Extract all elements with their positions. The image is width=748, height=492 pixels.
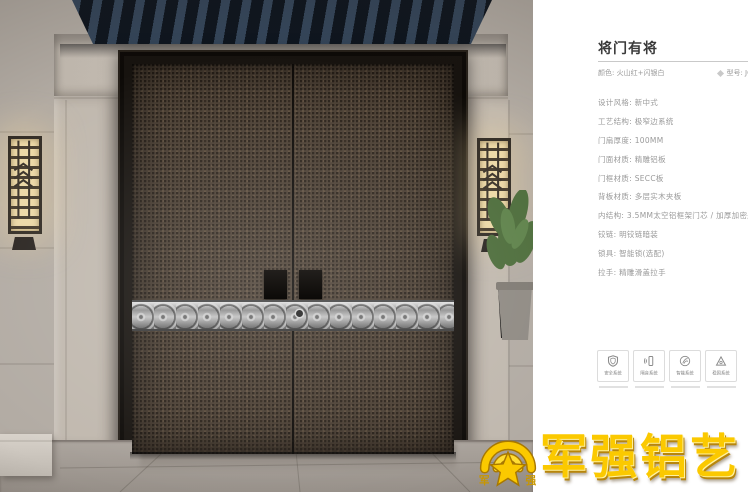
- feature-caption-line: [599, 386, 628, 388]
- model-group: 型号: JC: [718, 68, 748, 78]
- feature-caption-line: [635, 386, 664, 388]
- spec-row: 锁具: 智能锁(选配): [598, 248, 748, 267]
- fingerprint-icon: [679, 355, 691, 367]
- brand-emblem-icon: 军 强: [476, 425, 540, 491]
- spec-row: 铰链: 明铰链暗装: [598, 229, 748, 248]
- spec-panel: 将门有将 颜色: 火山红+闪银白 型号: JC 设计风格: 新中式 工艺结构: …: [533, 0, 748, 492]
- triangle-stability-icon: [715, 355, 727, 367]
- emblem-char-right: 强: [525, 474, 536, 487]
- spec-row: 门扇厚度: 100MM: [598, 135, 748, 154]
- brand-logo: 军 强 军强铝艺: [476, 424, 740, 492]
- door-scene-render: [0, 0, 533, 492]
- product-title: 将门有将: [598, 38, 658, 58]
- feature-stability: 稳固系统: [705, 350, 737, 388]
- door-handle-right: [299, 270, 322, 299]
- feature-label: 安全系统: [604, 369, 621, 375]
- door-handle-left: [264, 270, 287, 299]
- spec-row: 工艺结构: 极窄边系统: [598, 116, 748, 135]
- spec-row: 拉手: 精雕滑盖拉手: [598, 267, 748, 286]
- brand-name: 军强铝艺: [540, 425, 740, 491]
- feature-caption-line: [707, 386, 736, 388]
- feature-caption-line: [671, 386, 700, 388]
- spec-row: 背板材质: 多层实木夹板: [598, 191, 748, 210]
- keyhole: [296, 310, 303, 317]
- shield-icon: [607, 355, 619, 367]
- spec-row: 设计风格: 新中式: [598, 97, 748, 116]
- color-label: 颜色: 火山红+闪银白: [598, 68, 664, 78]
- emblem-char-left: 军: [479, 474, 490, 487]
- spec-row: 内结构: 3.5MM太空铝框架门芯 / 加厚加密航空铝蜂窝芯: [598, 210, 748, 229]
- feature-label: 智能系统: [676, 369, 693, 375]
- spec-list: 设计风格: 新中式 工艺结构: 极窄边系统 门扇厚度: 100MM 门面材质: …: [598, 97, 748, 286]
- feature-label: 隔音系统: [640, 369, 657, 375]
- product-sheet: 将门有将 颜色: 火山红+闪银白 型号: JC 设计风格: 新中式 工艺结构: …: [0, 0, 748, 492]
- sound-insulation-icon: [643, 355, 655, 367]
- model-icon: [717, 69, 724, 76]
- spec-row: 门框材质: SECC板: [598, 173, 748, 192]
- spec-row: 门面材质: 精雕铝板: [598, 154, 748, 173]
- title-divider: [598, 61, 748, 62]
- feature-smart: 智能系统: [669, 350, 701, 388]
- model-label: 型号: JC: [726, 68, 748, 78]
- feature-label: 稳固系统: [712, 369, 729, 375]
- feature-safety: 安全系统: [597, 350, 629, 388]
- feature-badges: 安全系统 隔音系统: [597, 350, 737, 388]
- meta-row: 颜色: 火山红+闪银白 型号: JC: [598, 68, 748, 78]
- feature-sound-insulation: 隔音系统: [633, 350, 665, 388]
- engraved-silver-band: [132, 300, 454, 331]
- floor-tile-joints: [0, 0, 533, 492]
